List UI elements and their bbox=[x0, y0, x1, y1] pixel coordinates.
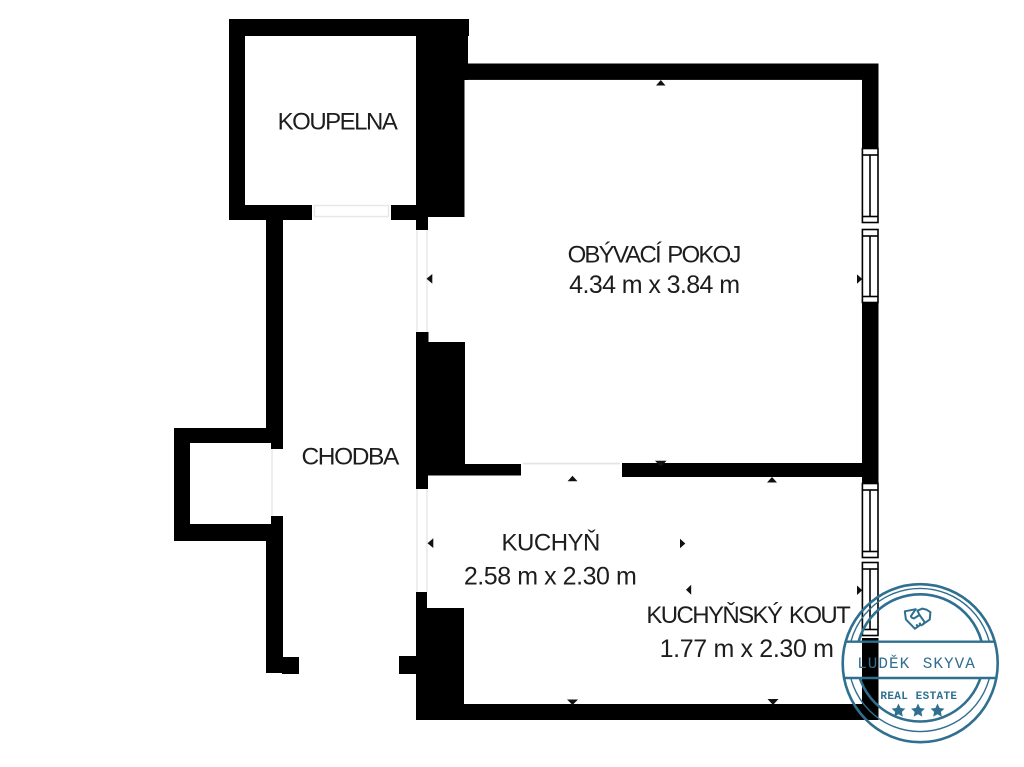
svg-text:KUCHYŇSKÝ KOUT: KUCHYŇSKÝ KOUT bbox=[646, 602, 851, 629]
svg-text:KUCHYŇ: KUCHYŇ bbox=[502, 530, 600, 557]
svg-text:1.77 m x 2.30 m: 1.77 m x 2.30 m bbox=[660, 635, 834, 663]
svg-text:KOUPELNA: KOUPELNA bbox=[278, 109, 398, 136]
svg-text:OBÝVACÍ POKOJ: OBÝVACÍ POKOJ bbox=[568, 242, 741, 269]
svg-text:4.34 m x 3.84 m: 4.34 m x 3.84 m bbox=[569, 271, 739, 299]
svg-text:LUDĚK SKYVA: LUDĚK SKYVA bbox=[857, 654, 976, 673]
svg-text:REAL ESTATE: REAL ESTATE bbox=[880, 691, 957, 703]
svg-text:2.58 m x 2.30 m: 2.58 m x 2.30 m bbox=[464, 563, 637, 591]
svg-text:CHODBA: CHODBA bbox=[301, 444, 399, 471]
